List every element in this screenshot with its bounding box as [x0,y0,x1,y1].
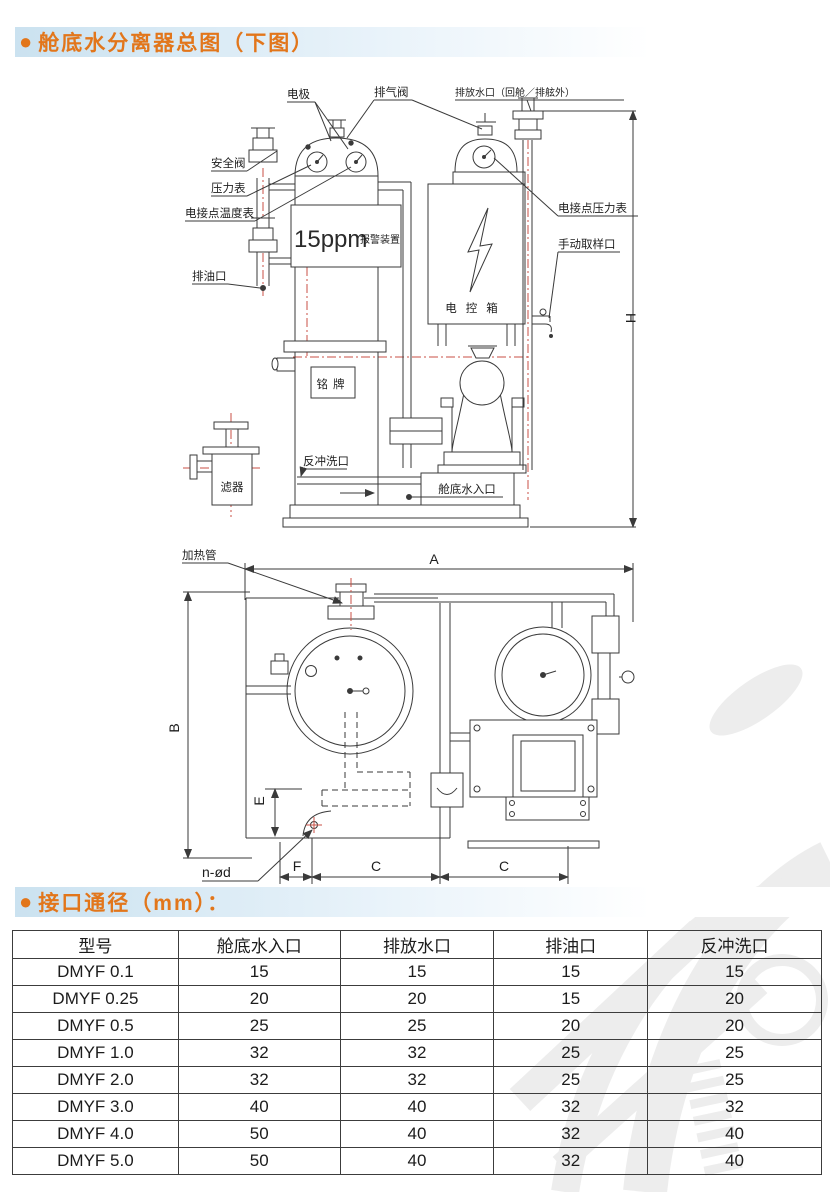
safety-valve-pipe [249,128,295,291]
column-header: 舱底水入口 [178,931,340,959]
model-cell: DMYF 5.0 [13,1148,179,1175]
electrode-label: 电极 [287,87,310,101]
diameter-cell: 40 [648,1148,822,1175]
dimension-e: E [251,789,302,836]
diameter-cell: 32 [178,1067,340,1094]
top-pipe-run [374,594,614,628]
model-cell: DMYF 0.5 [13,1013,179,1040]
dimension-b: B [166,592,252,858]
diameter-cell: 40 [340,1121,494,1148]
ppm-value-label: 15ppm [294,226,367,253]
filter-label: 滤器 [221,481,244,494]
diameter-cell: 25 [494,1040,648,1067]
diameter-cell: 15 [340,959,494,986]
diameter-cell: 15 [494,986,648,1013]
column-header: 型号 [13,931,179,959]
dim-a-label: A [429,551,439,567]
diameter-cell: 50 [178,1148,340,1175]
diameter-cell: 32 [494,1121,648,1148]
model-cell: DMYF 1.0 [13,1040,179,1067]
diameter-cell: 25 [494,1067,648,1094]
dimension-h: H [530,111,639,527]
dim-b-label: B [166,723,182,732]
diameter-cell: 15 [494,959,648,986]
base-skid [283,518,528,527]
diameter-cell: 32 [494,1094,648,1121]
heating-tube-callout: 加热管 [182,548,342,603]
diagram-top-view: A B 加热管 [166,548,634,884]
diameter-cell: 25 [648,1067,822,1094]
center-pipe [431,603,470,838]
vent-valve-label: 排气阀 [374,85,409,99]
strainer-filter: 滤器 [190,422,259,505]
section1-title: 舱底水分离器总图（下图） [38,27,314,57]
diameter-cell: 20 [494,1013,648,1040]
separator-tank: 铭牌 [272,120,386,505]
ppm-device-label: 报警装置 [360,233,400,246]
diameter-cell: 50 [178,1121,340,1148]
diameter-cell: 32 [178,1040,340,1067]
catalog-page: 铭牌 15ppm 报警装置 电控箱 [0,0,830,1192]
table-header-row: 型号舱底水入口排放水口排油口反冲洗口 [13,931,822,959]
safety-valve-label: 安全阀 [211,156,246,170]
contact-thermometer-label: 电接点温度表 [185,206,254,220]
baseframe-outline [246,598,450,838]
backflush-label: 反冲洗口 [303,454,349,468]
diameter-cell: 32 [648,1094,822,1121]
control-cabinet: 电控箱 [428,113,525,346]
table-row: DMYF 0.115151515 [13,959,822,986]
dim-c1-label: C [371,858,381,874]
column-header: 反冲洗口 [648,931,822,959]
bullet-icon: ● [19,31,32,53]
dimension-a: A [245,551,633,622]
diameter-cell: 32 [494,1148,648,1175]
diameter-cell: 20 [340,986,494,1013]
contact-pressure-gauge-label: 电接点压力表 [558,201,627,215]
dim-h-label: H [623,313,639,323]
oil-outlet-label: 排油口 [192,269,227,283]
nameplate-label: 铭牌 [317,377,350,391]
diameter-table-wrap: 型号舱底水入口排放水口排油口反冲洗口 DMYF 0.115151515DMYF … [12,930,822,1175]
diameter-cell: 40 [648,1121,822,1148]
diameter-cell: 25 [648,1040,822,1067]
pressure-gauge-label: 压力表 [211,181,246,195]
pump-unit [438,346,526,473]
dim-f-label: F [293,858,302,874]
column-header: 排油口 [494,931,648,959]
vessel-top-view [495,627,591,723]
diameter-table-body: DMYF 0.115151515DMYF 0.2520201520DMYF 0.… [13,959,822,1175]
bullet-icon: ● [19,891,32,913]
table-row: DMYF 5.050403240 [13,1148,822,1175]
diameter-cell: 20 [648,1013,822,1040]
model-cell: DMYF 2.0 [13,1067,179,1094]
section-header-diameters: ● 接口通径（mm）： [15,887,830,917]
table-row: DMYF 0.525252020 [13,1013,822,1040]
column-header: 排放水口 [340,931,494,959]
diameter-table: 型号舱底水入口排放水口排油口反冲洗口 DMYF 0.115151515DMYF … [12,930,822,1175]
diameter-cell: 20 [648,986,822,1013]
diameter-cell: 20 [178,986,340,1013]
diameter-cell: 40 [340,1094,494,1121]
model-cell: DMYF 3.0 [13,1094,179,1121]
ppm-alarm-box: 15ppm 报警装置 [291,205,401,267]
hidden-piping [322,712,410,806]
table-row: DMYF 0.2520201520 [13,986,822,1013]
table-row: DMYF 1.032322525 [13,1040,822,1067]
tank-top-view [246,578,413,754]
right-edge-units [592,616,634,734]
table-row: DMYF 4.050403240 [13,1121,822,1148]
manual-sample-label: 手动取样口 [558,237,616,251]
safety-valve-2 [249,218,277,252]
section2-title: 接口通径（mm）： [38,887,230,917]
diameter-cell: 32 [340,1040,494,1067]
table-row: DMYF 2.032322525 [13,1067,822,1094]
model-cell: DMYF 4.0 [13,1121,179,1148]
bilge-inlet-box: 舱底水入口 [407,473,515,505]
heating-tube-label: 加热管 [182,548,217,562]
bolt-holes-label: n-ød [202,864,231,880]
dim-e-label: E [251,796,267,805]
diagram-side-view: 铭牌 15ppm 报警装置 电控箱 [183,85,639,527]
tank-vent-valve [328,120,346,137]
discharge-outlet-label: 排放水口（回舱／排舷外） [455,86,575,99]
control-box-label: 电控箱 [445,301,507,315]
safety-valve-1 [249,128,277,162]
diameter-cell: 40 [340,1148,494,1175]
diameter-cell: 40 [178,1094,340,1121]
model-cell: DMYF 0.1 [13,959,179,986]
diameter-cell: 15 [178,959,340,986]
diameter-cell: 25 [178,1013,340,1040]
table-row: DMYF 3.040403232 [13,1094,822,1121]
pump-top-view [468,720,599,848]
vessel-vent-valve [476,113,496,135]
base-plate [290,505,520,518]
diameter-cell: 25 [340,1013,494,1040]
bilge-inlet-label: 舱底水入口 [438,482,496,496]
model-cell: DMYF 0.25 [13,986,179,1013]
diameter-cell: 32 [340,1067,494,1094]
diameter-cell: 15 [648,959,822,986]
dim-c2-label: C [499,858,509,874]
side-fitting [271,654,288,674]
section-header-overview: ● 舱底水分离器总图（下图） [15,27,830,57]
heating-tube-flange [328,578,374,630]
